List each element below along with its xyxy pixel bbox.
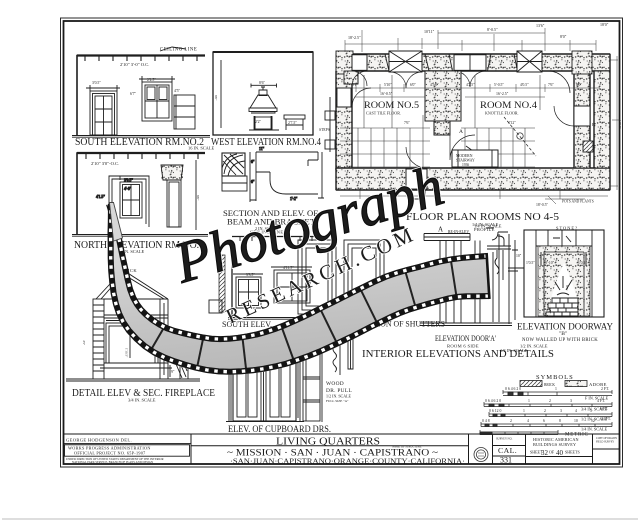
svg-text:0 6 12 0: 0 6 12 0 [489, 409, 501, 413]
svg-text:1/2 IN. SCALE: 1/2 IN. SCALE [326, 394, 352, 399]
svg-text:3/4 IN. SCALE: 3/4 IN. SCALE [128, 398, 156, 403]
svg-text:7'6": 7'6" [548, 83, 554, 87]
svg-text:1/4 IN. SCALE: 1/4 IN. SCALE [581, 427, 608, 432]
svg-text:GEORGE HODGENSON DEL.: GEORGE HODGENSON DEL. [66, 438, 132, 443]
svg-text:1/4 IN. SCALE: 1/4 IN. SCALE [474, 224, 502, 229]
svg-text:NATIONAL PARK SERVICE, BRANCH: NATIONAL PARK SERVICE, BRANCH OF PLANS A… [72, 460, 154, 464]
svg-text:OFFICIAL PROJECT NO. 65P-190: OFFICIAL PROJECT NO. 65P-1907 [74, 451, 146, 456]
svg-text:4 FT.: 4 FT. [597, 399, 605, 403]
svg-text:POTS AND PLANTS: POTS AND PLANTS [562, 200, 594, 204]
svg-text:0 6 4 6 2 0: 0 6 4 6 2 0 [505, 387, 521, 391]
svg-text:"B": "B" [559, 331, 567, 337]
svg-text:INTERIOR ELEVATIONS AND DET: INTERIOR ELEVATIONS AND DETAILS [362, 348, 554, 360]
svg-text:ROOM NO.4: ROOM NO.4 [480, 101, 537, 111]
svg-text:STONE?: STONE? [556, 226, 578, 231]
svg-text:10'11": 10'11" [424, 29, 435, 34]
svg-text:1'0.5": 1'0.5" [526, 261, 535, 265]
svg-text:6 FT.: 6 FT. [600, 407, 608, 411]
svg-text:6: 6 [543, 419, 545, 423]
svg-text:10": 10" [516, 254, 522, 258]
svg-text:B: B [592, 122, 595, 127]
svg-text:13'6": 13'6" [536, 23, 545, 28]
svg-text:SHEETS: SHEETS [565, 450, 580, 455]
svg-text:MODERN: MODERN [456, 154, 473, 158]
svg-text:·SAN·JUAN·CAPISTRANO·ORANGE·CO: ·SAN·JUAN·CAPISTRANO·ORANGE·COUNTY·CALIF… [230, 456, 465, 465]
svg-text:10: 10 [574, 419, 578, 423]
svg-text:8'0": 8'0" [214, 95, 218, 101]
svg-text:SYMBOLS: SYMBOLS [536, 374, 574, 381]
svg-text:11": 11" [259, 147, 265, 151]
svg-text:2'2.5": 2'2.5" [147, 78, 156, 82]
svg-text:2 FT.: 2 FT. [601, 387, 609, 391]
svg-text:FIELD SURVEY: FIELD SURVEY [596, 441, 614, 444]
svg-text:KNOTTLE FLOOR.: KNOTTLE FLOOR. [485, 111, 519, 116]
svg-text:A: A [438, 226, 443, 234]
svg-text:4'5": 4'5" [174, 89, 180, 93]
svg-text:2: 2 [544, 409, 546, 413]
svg-text:1'10.5": 1'10.5" [125, 348, 129, 358]
svg-text:5'1": 5'1" [352, 83, 358, 87]
svg-text:8'6": 8'6" [259, 81, 265, 85]
svg-text:CAL.: CAL. [498, 446, 517, 455]
svg-text:2: 2 [510, 419, 512, 423]
svg-text:NOW WALLED UP WITH BRICK: NOW WALLED UP WITH BRICK [522, 338, 598, 343]
svg-text:1: 1 [555, 387, 557, 391]
svg-text:1'0.5": 1'0.5" [578, 261, 587, 265]
svg-text:5'10": 5'10" [384, 83, 392, 87]
svg-text:STEPS: STEPS [319, 128, 330, 132]
svg-text:331: 331 [500, 456, 512, 465]
svg-text:1: 1 [523, 409, 525, 413]
svg-text:4'5.5": 4'5.5" [430, 83, 439, 87]
svg-text:0 6 4 6 2 0: 0 6 4 6 2 0 [485, 399, 501, 403]
svg-text:4: 4 [527, 419, 529, 423]
svg-text:6": 6" [251, 180, 255, 184]
svg-text:9": 9" [171, 370, 175, 374]
svg-text:12: 12 [591, 419, 595, 423]
svg-text:4'12": 4'12" [508, 121, 516, 125]
svg-text:2'7.5": 2'7.5" [288, 121, 297, 125]
svg-text:SOUTH ELEVATION RM.NO.2: SOUTH ELEVATION RM.NO.2 [75, 137, 204, 148]
svg-text:18'-2.5": 18'-2.5" [348, 35, 361, 40]
svg-text:8'0": 8'0" [576, 83, 582, 87]
svg-text:CAST TILE FLOOR.: CAST TILE FLOOR. [366, 111, 401, 116]
svg-text:4'-0": 4'-0" [124, 187, 132, 191]
svg-text:BUILDINGS SURVEY: BUILDINGS SURVEY [533, 442, 576, 447]
svg-text:16'-0.5": 16'-0.5" [380, 92, 393, 96]
svg-text:ELEV. OF CUPBOARD DRS.: ELEV. OF CUPBOARD DRS. [228, 424, 331, 435]
svg-text:LIVING QUARTERS: LIVING QUARTERS [276, 436, 380, 448]
svg-text:ELEVATION DOOR'A': ELEVATION DOOR'A' [435, 333, 496, 343]
svg-text:1: 1 [528, 399, 530, 403]
svg-text:8'7": 8'7" [565, 285, 569, 291]
svg-text:5: 5 [590, 409, 592, 413]
svg-text:RE-IN-ELEV: RE-IN-ELEV [448, 230, 469, 234]
svg-text:18'0": 18'0" [600, 22, 609, 27]
svg-text:ROOM NO.5: ROOM NO.5 [364, 101, 419, 111]
svg-text:A: A [459, 129, 463, 135]
svg-text:5'-0.5": 5'-0.5" [494, 83, 504, 87]
svg-text:2'10" 3'-0" O.C.: 2'10" 3'-0" O.C. [120, 62, 149, 67]
svg-text:4'11.5": 4'11.5" [283, 266, 294, 270]
svg-text:8'-0.5": 8'-0.5" [487, 27, 498, 32]
svg-text:FULL SIZE "A": FULL SIZE "A" [326, 399, 349, 403]
svg-text:16'-2.5": 16'-2.5" [496, 92, 509, 96]
svg-text:4: 4 [575, 409, 577, 413]
svg-text:0 4 8: 0 4 8 [482, 419, 490, 423]
svg-text:8: 8 [559, 419, 561, 423]
svg-text:2'10" 3'0"-O.C.: 2'10" 3'0"-O.C. [91, 161, 119, 166]
svg-text:4'2.5": 4'2.5" [466, 83, 475, 87]
svg-text:4'5": 4'5" [82, 340, 86, 346]
svg-text:32: 32 [541, 449, 549, 457]
svg-text:STAIRWAY: STAIRWAY [456, 159, 475, 163]
svg-text:18'-0.5": 18'-0.5" [536, 203, 548, 207]
svg-text:6'0": 6'0" [410, 83, 416, 87]
svg-text:8'0": 8'0" [196, 195, 200, 201]
svg-text:WEST ELEVATION RM.NO.4: WEST ELEVATION RM.NO.4 [211, 137, 321, 148]
svg-text:6": 6" [251, 160, 255, 164]
svg-text:8'0": 8'0" [560, 34, 567, 39]
svg-text:14 FT.: 14 FT. [601, 417, 611, 421]
svg-text:7'6": 7'6" [404, 121, 410, 125]
svg-text:40: 40 [556, 449, 564, 457]
svg-text:CEILING LINE: CEILING LINE [160, 48, 197, 53]
svg-text:4'0.5": 4'0.5" [520, 83, 529, 87]
svg-text:3'0.5": 3'0.5" [124, 179, 133, 183]
svg-text:1936: 1936 [462, 163, 469, 167]
svg-text:ELEVATION DOORWAY: ELEVATION DOORWAY [517, 322, 613, 332]
svg-text:14'10": 14'10" [618, 120, 622, 129]
svg-text:2'2": 2'2" [255, 120, 261, 124]
svg-text:3: 3 [570, 399, 572, 403]
svg-text:3'0.5": 3'0.5" [92, 81, 101, 85]
svg-text:4'1.5": 4'1.5" [96, 195, 105, 199]
svg-text:8'-10": 8'-10" [545, 261, 555, 265]
svg-text:WOOD: WOOD [326, 381, 344, 387]
svg-text:2: 2 [549, 399, 551, 403]
svg-text:3: 3 [560, 409, 562, 413]
svg-text:BRICK: BRICK [544, 383, 555, 387]
svg-text:6'7": 6'7" [130, 92, 136, 96]
svg-text:SURVEY NO.: SURVEY NO. [496, 438, 513, 441]
svg-text:16 IN. SCALE: 16 IN. SCALE [188, 146, 215, 151]
svg-text:OF: OF [549, 450, 555, 455]
